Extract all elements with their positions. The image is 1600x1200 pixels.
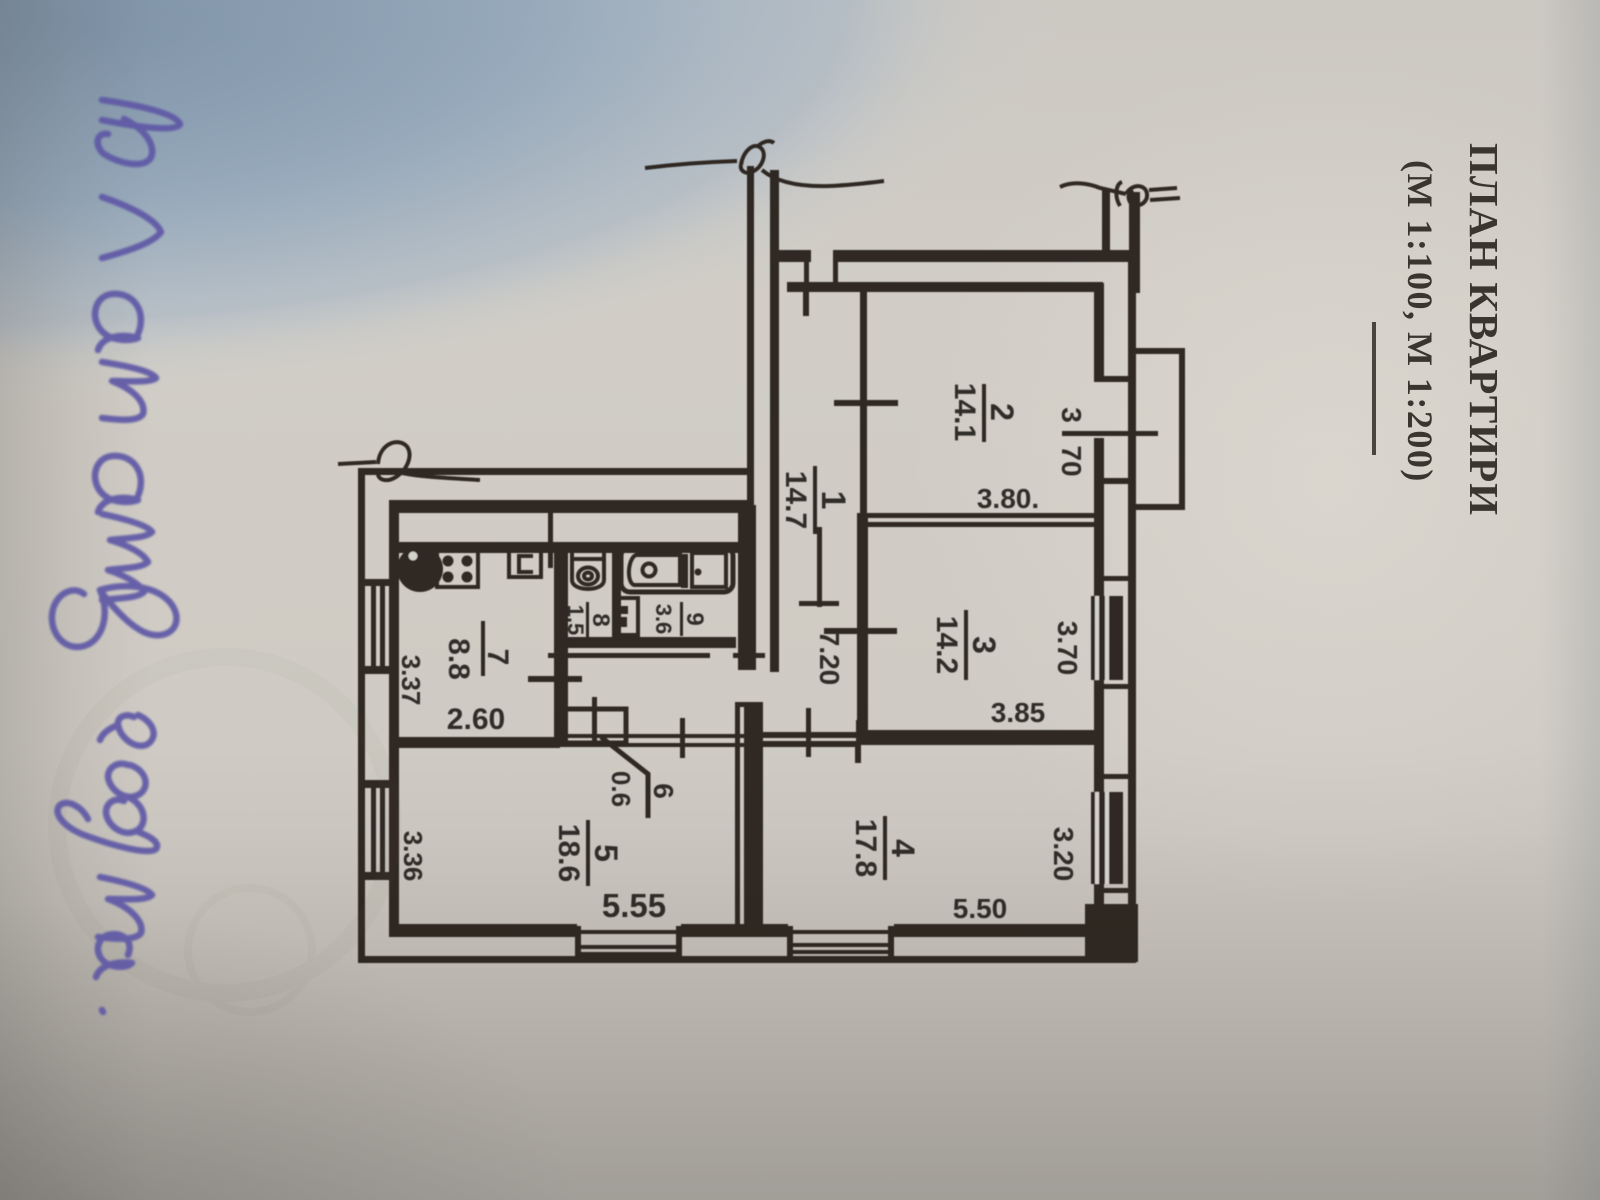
- svg-text:3: 3: [966, 636, 1002, 654]
- svg-text:8.8: 8.8: [442, 638, 475, 680]
- svg-text:3.85: 3.85: [991, 697, 1046, 728]
- svg-text:14.1: 14.1: [948, 383, 981, 441]
- svg-text:8: 8: [587, 613, 614, 626]
- svg-text:70: 70: [1056, 445, 1087, 476]
- svg-text:7: 7: [481, 649, 514, 666]
- svg-text:3.20: 3.20: [1048, 827, 1079, 882]
- svg-text:9: 9: [681, 612, 708, 625]
- svg-text:3.37: 3.37: [396, 655, 426, 706]
- svg-text:18.6: 18.6: [552, 824, 585, 882]
- svg-text:3: 3: [1056, 407, 1087, 423]
- svg-text:3.70: 3.70: [1052, 621, 1083, 676]
- svg-text:5.50: 5.50: [953, 893, 1008, 924]
- svg-text:ПЛАН КВАРТИРИ: ПЛАН КВАРТИРИ: [1461, 143, 1507, 516]
- svg-text:14.7: 14.7: [779, 471, 812, 529]
- svg-text:(М 1:100, М 1:200): (М 1:100, М 1:200): [1400, 160, 1440, 483]
- svg-text:5: 5: [588, 844, 624, 862]
- svg-text:1.5: 1.5: [563, 605, 588, 636]
- svg-text:2: 2: [984, 403, 1020, 421]
- svg-text:5.55: 5.55: [602, 887, 666, 924]
- svg-text:17.8: 17.8: [849, 819, 882, 877]
- svg-text:6: 6: [648, 783, 679, 799]
- svg-text:3.80.: 3.80.: [977, 483, 1039, 514]
- svg-text:1: 1: [814, 491, 852, 510]
- svg-text:4: 4: [885, 839, 921, 857]
- svg-text:3.6: 3.6: [651, 604, 676, 635]
- svg-text:14.2: 14.2: [930, 616, 963, 674]
- svg-text:7.20: 7.20: [814, 631, 845, 686]
- svg-text:3.36: 3.36: [398, 831, 428, 882]
- svg-text:0.6: 0.6: [606, 771, 636, 807]
- svg-text:2.60: 2.60: [447, 703, 505, 736]
